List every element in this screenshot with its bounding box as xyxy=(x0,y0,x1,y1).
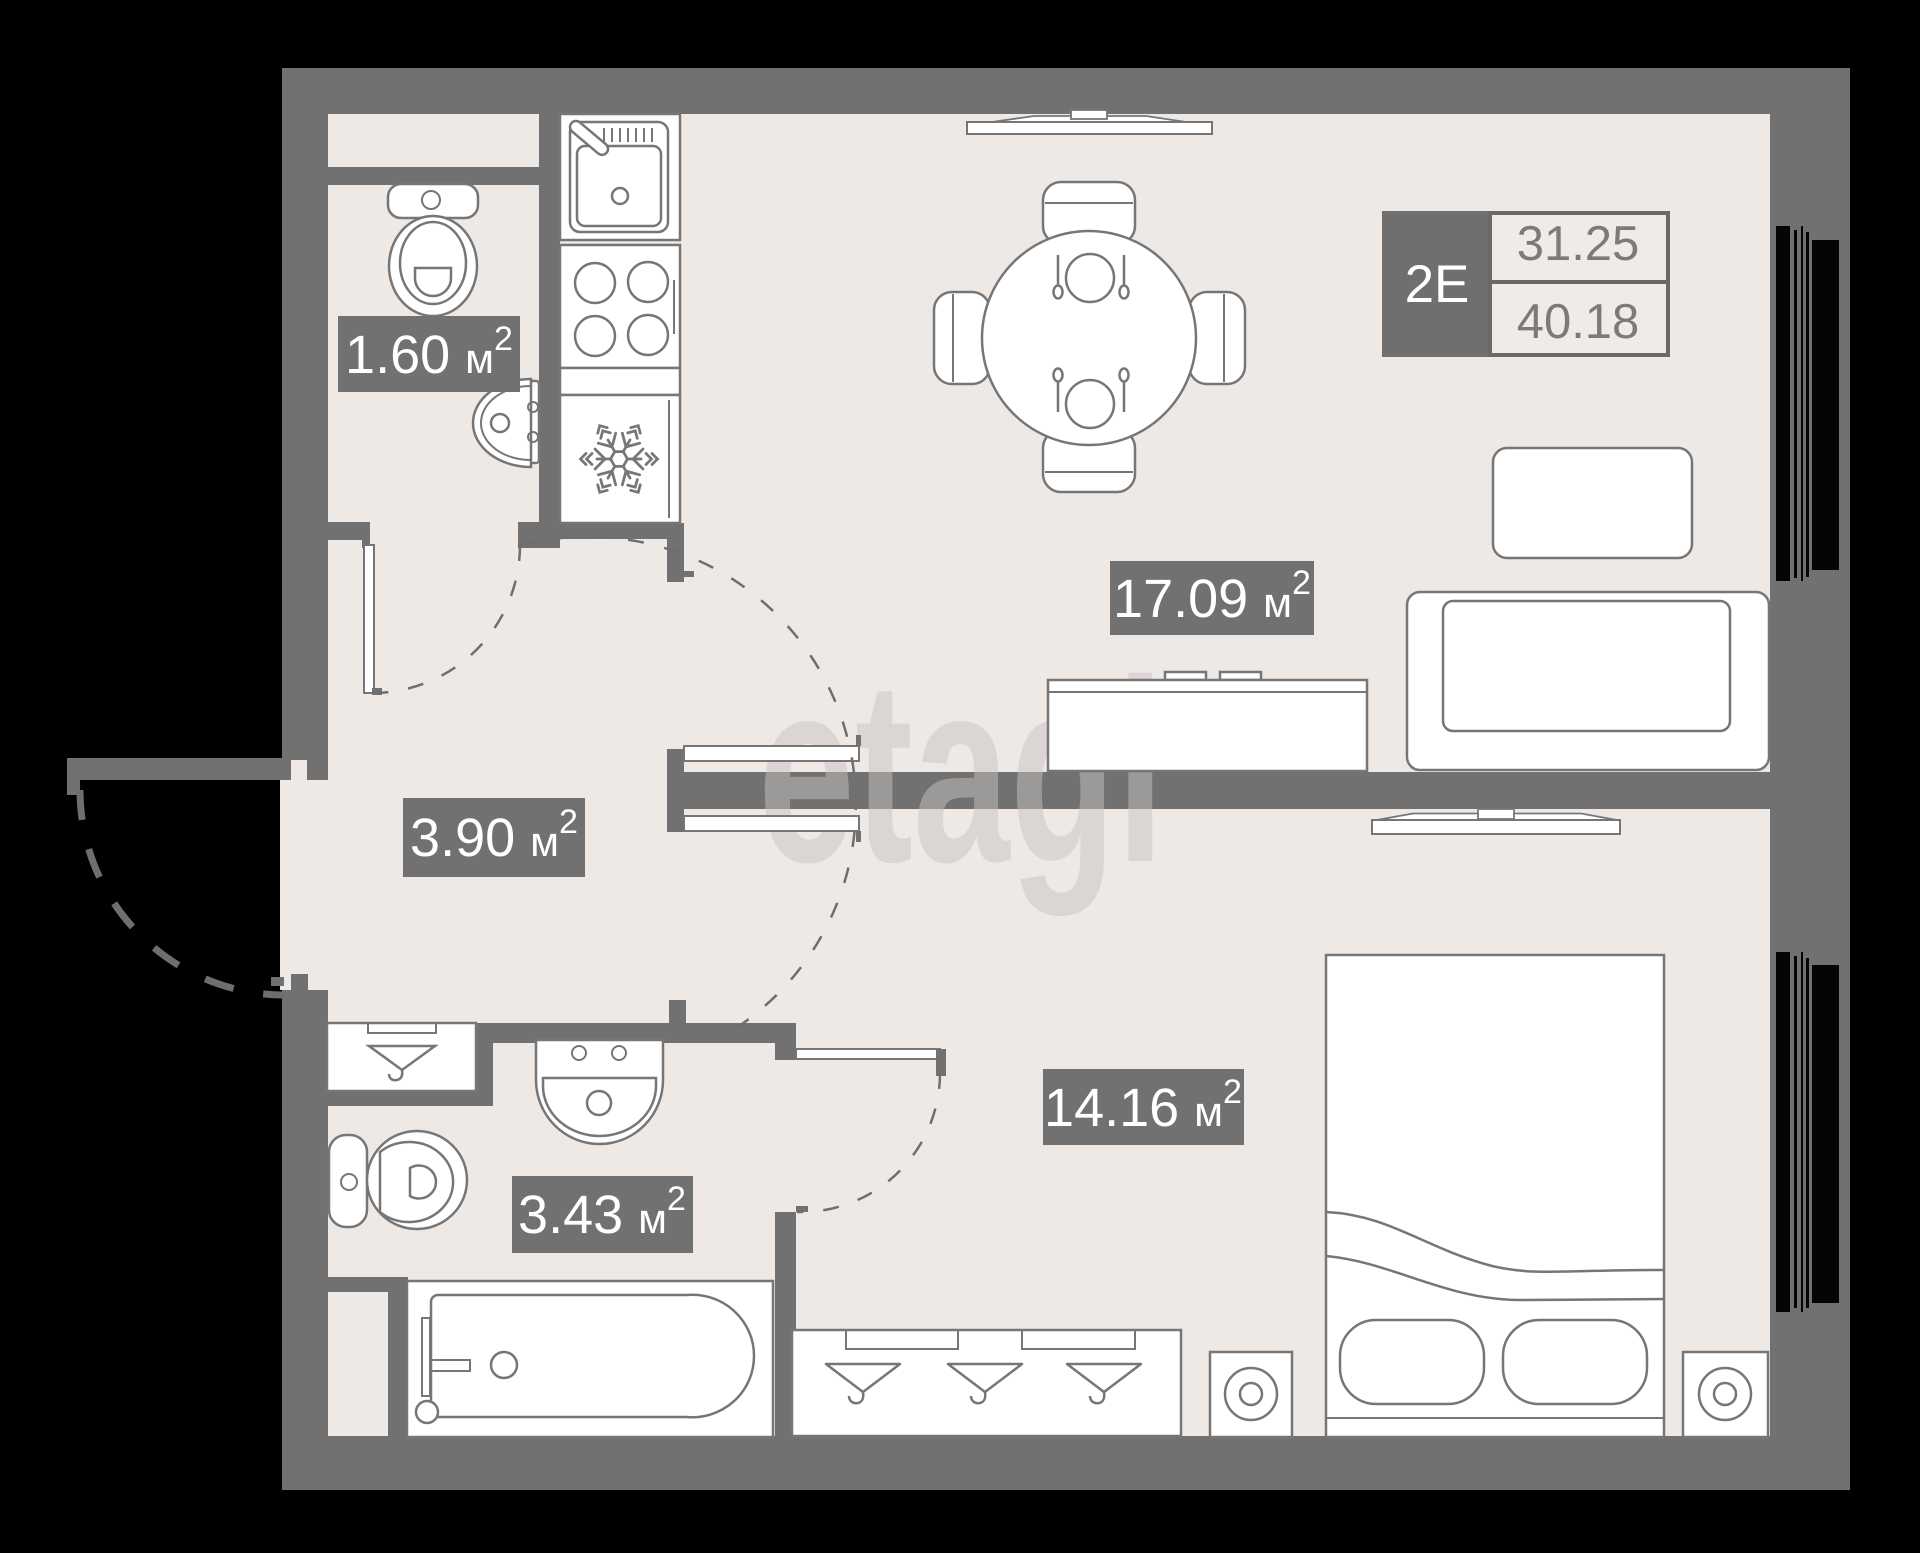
svg-text:2Е: 2Е xyxy=(1405,255,1470,314)
svg-text:31.25: 31.25 xyxy=(1517,217,1640,271)
svg-text:40.18: 40.18 xyxy=(1517,295,1640,349)
svg-text:etagi: etagi xyxy=(758,627,1165,918)
